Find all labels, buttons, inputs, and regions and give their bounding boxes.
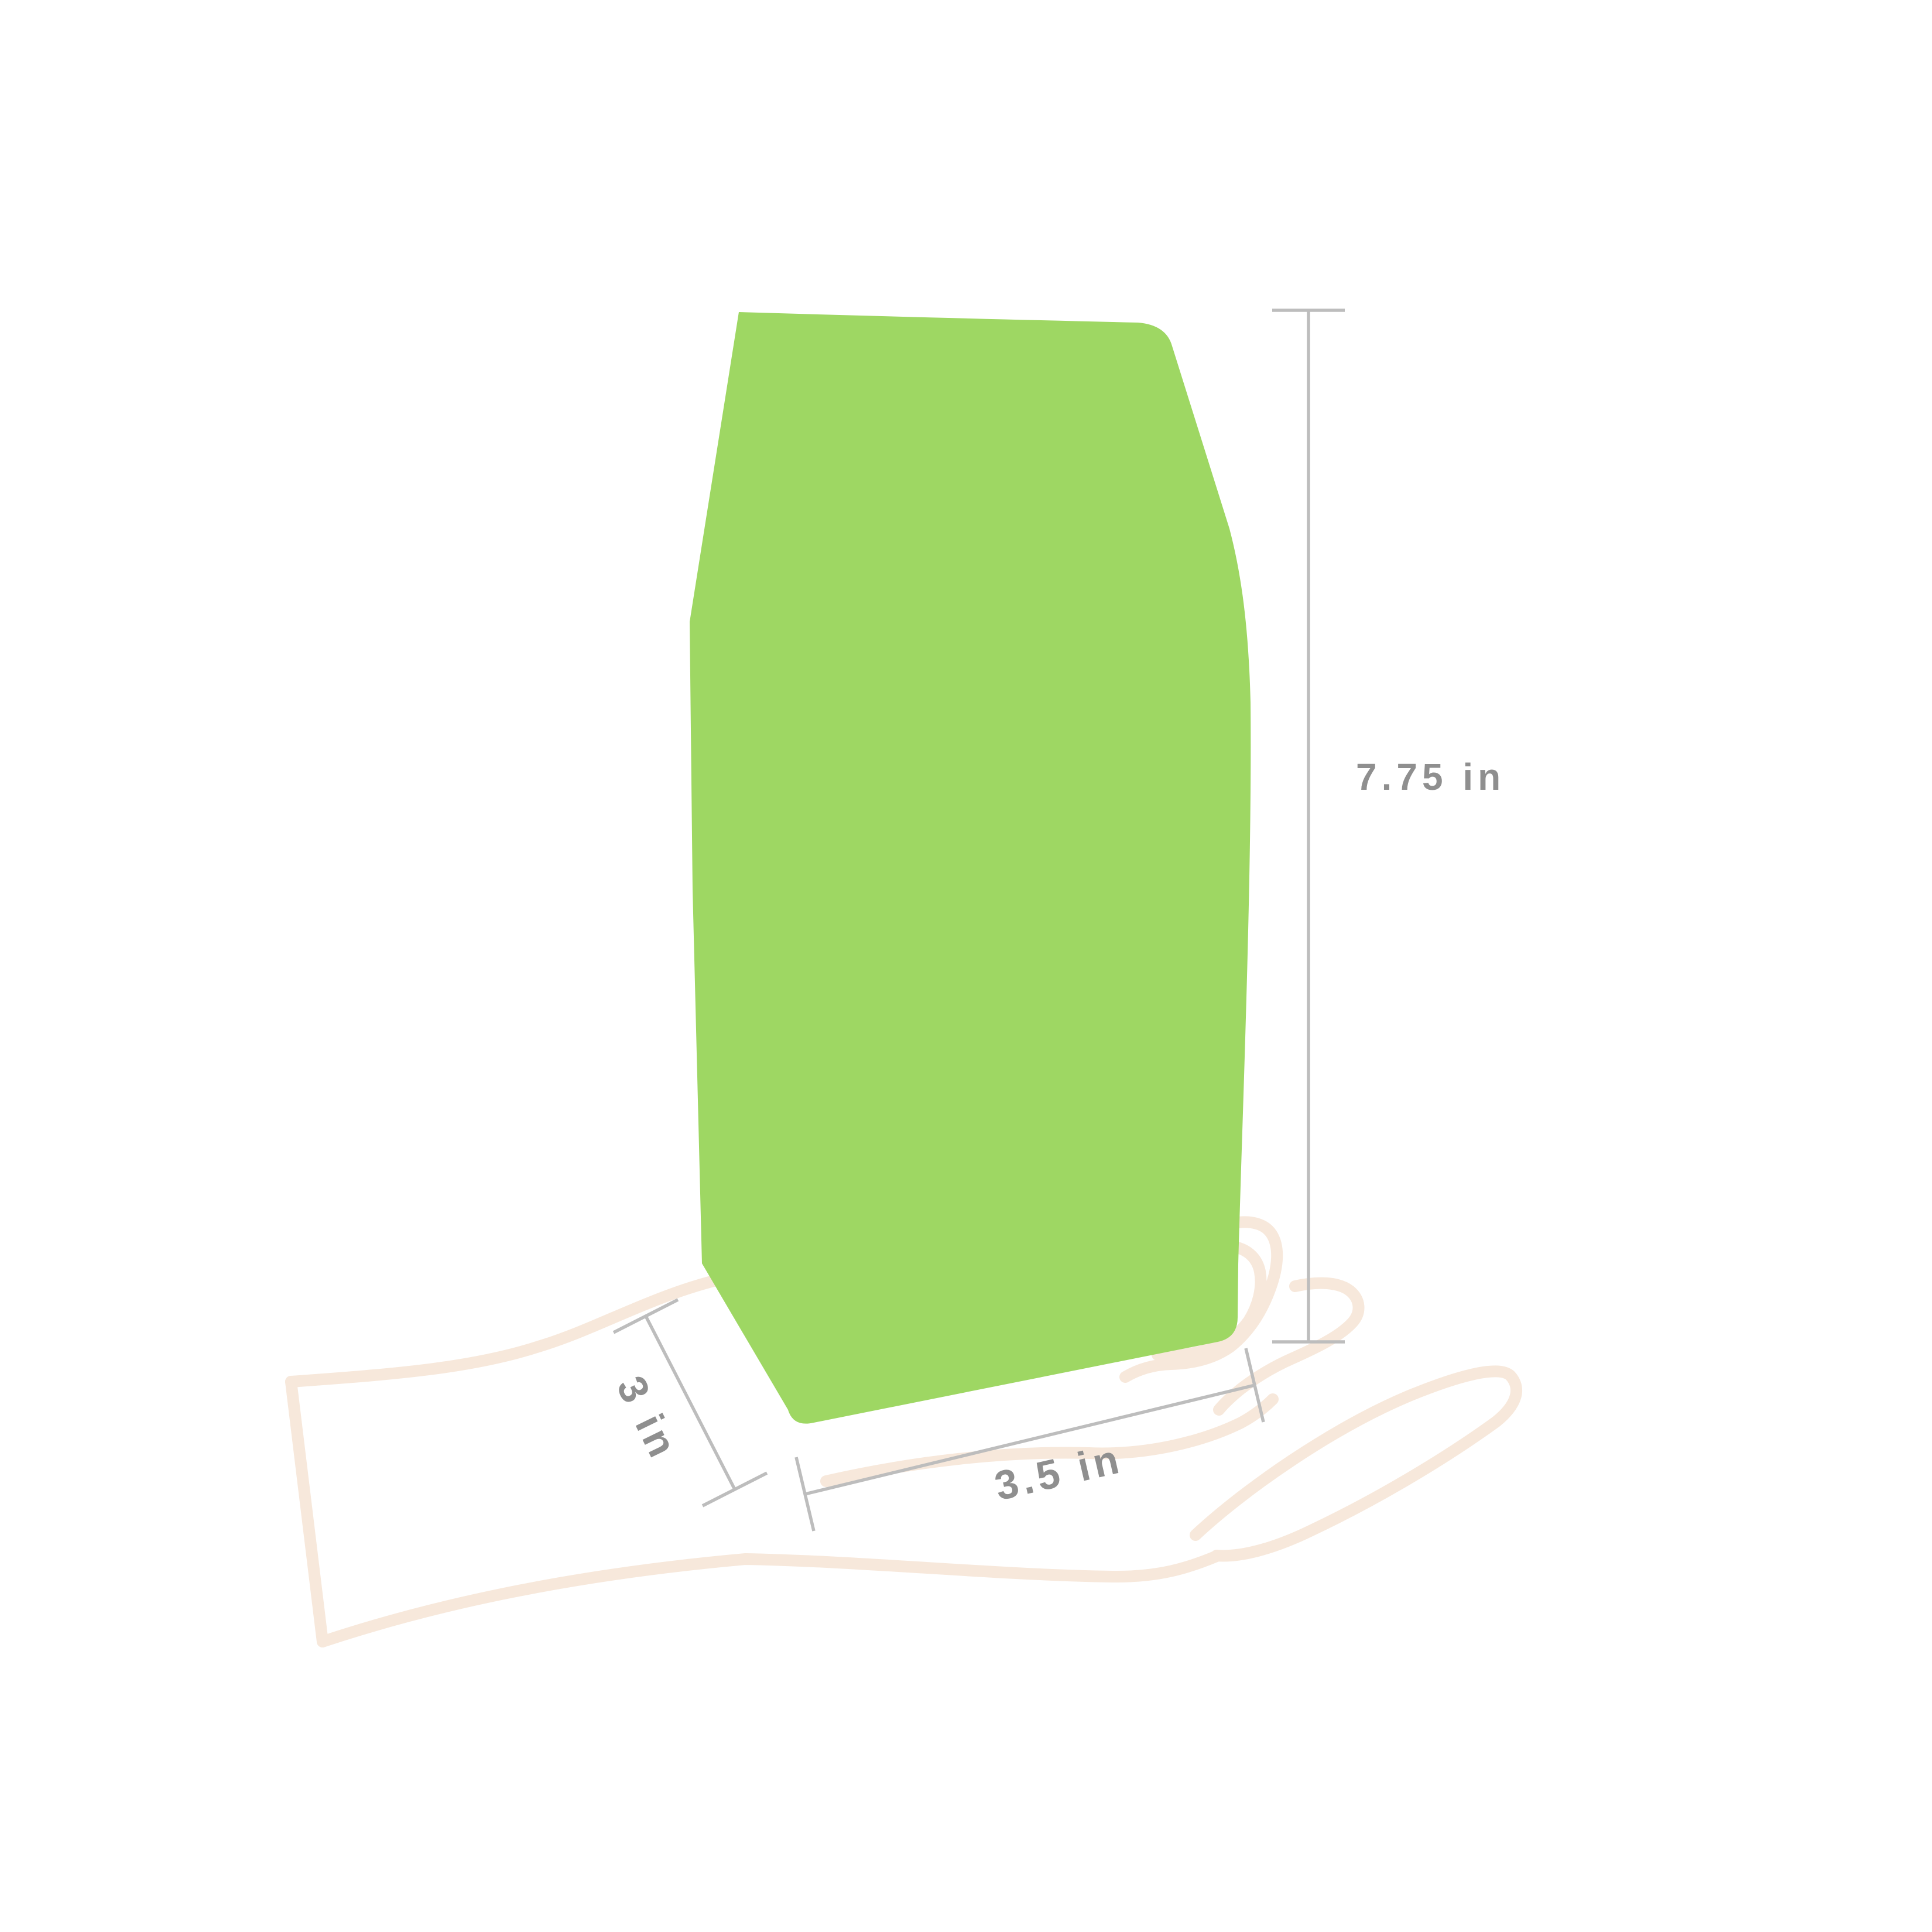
svg-text:7.75 in: 7.75 in (1356, 756, 1505, 798)
